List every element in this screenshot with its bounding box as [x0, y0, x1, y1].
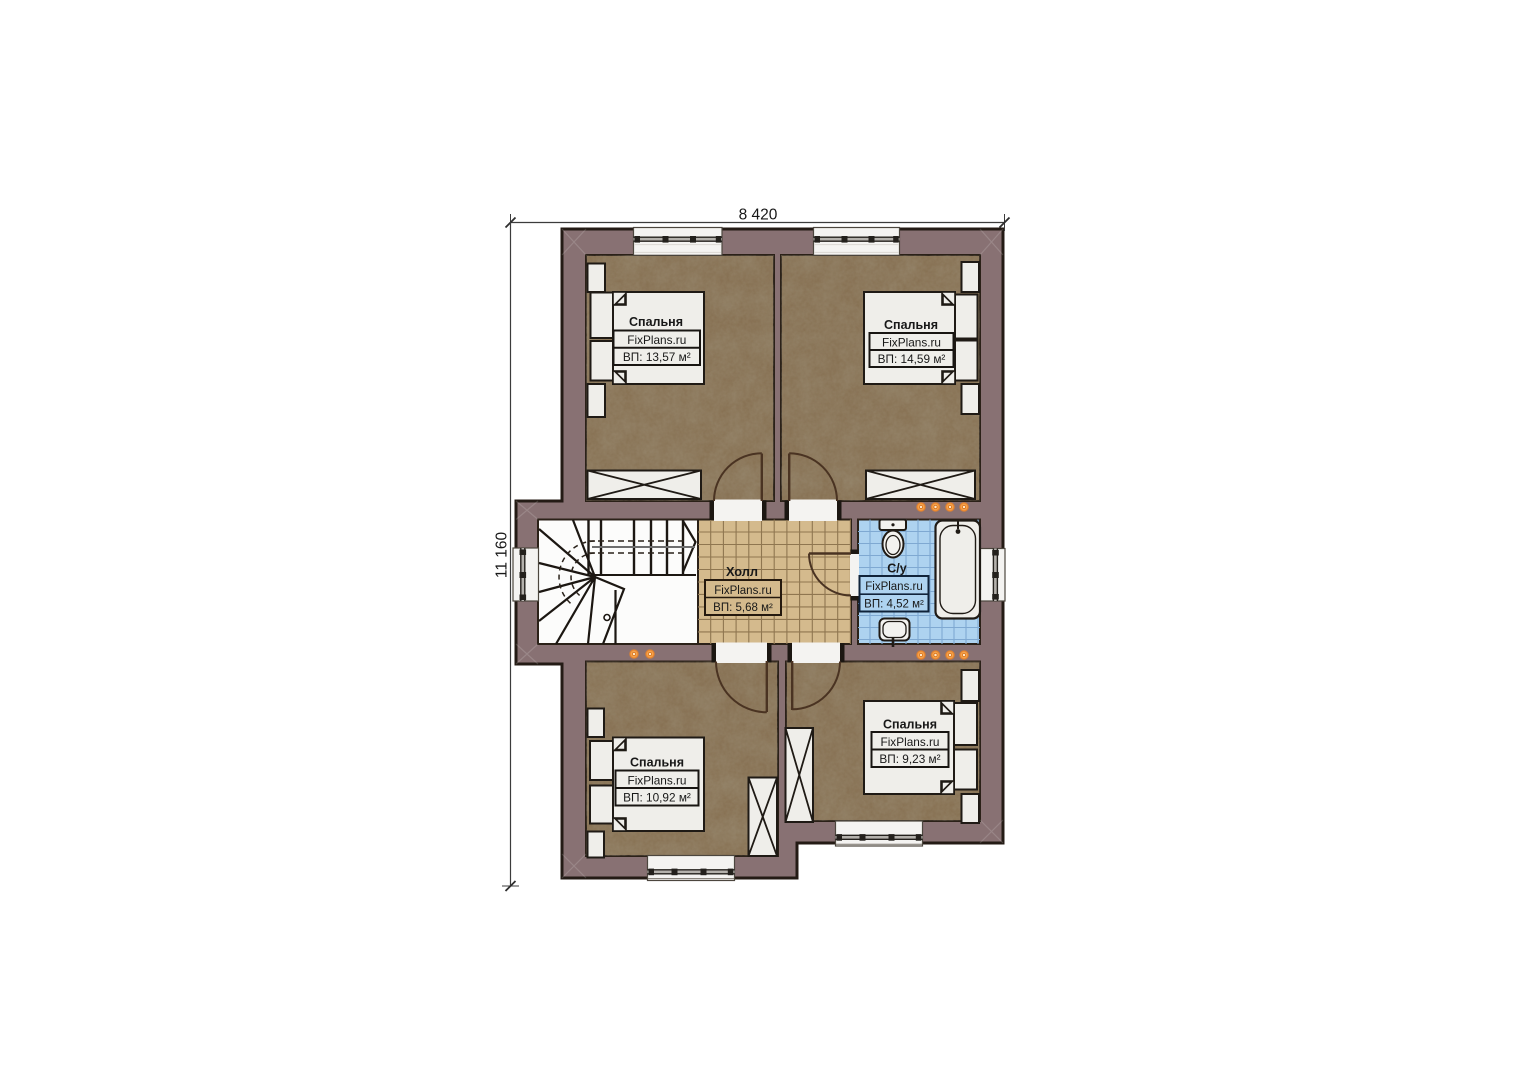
svg-text:ВП: 14,59 м²: ВП: 14,59 м²	[878, 352, 946, 366]
svg-text:Спальня: Спальня	[884, 318, 938, 332]
svg-text:FixPlans.ru: FixPlans.ru	[627, 774, 686, 788]
svg-text:ВП: 10,92 м²: ВП: 10,92 м²	[623, 791, 691, 805]
svg-text:Спальня: Спальня	[630, 756, 684, 770]
svg-text:ВП: 13,57 м²: ВП: 13,57 м²	[623, 350, 691, 364]
svg-text:Спальня: Спальня	[629, 315, 683, 329]
svg-text:FixPlans.ru: FixPlans.ru	[627, 333, 686, 347]
svg-text:ВП: 4,52 м²: ВП: 4,52 м²	[864, 599, 924, 611]
svg-text:8 420: 8 420	[739, 207, 778, 224]
svg-text:FixPlans.ru: FixPlans.ru	[865, 581, 923, 593]
svg-text:ВП: 5,68 м²: ВП: 5,68 м²	[713, 602, 773, 614]
svg-text:11 160: 11 160	[494, 531, 511, 578]
svg-text:FixPlans.ru: FixPlans.ru	[714, 585, 772, 597]
svg-text:С/у: С/у	[887, 562, 907, 576]
svg-text:Спальня: Спальня	[883, 718, 937, 732]
svg-text:ВП: 9,23 м²: ВП: 9,23 м²	[879, 752, 940, 766]
svg-text:FixPlans.ru: FixPlans.ru	[882, 336, 941, 350]
svg-text:FixPlans.ru: FixPlans.ru	[880, 735, 939, 749]
svg-text:Холл: Холл	[726, 564, 758, 579]
